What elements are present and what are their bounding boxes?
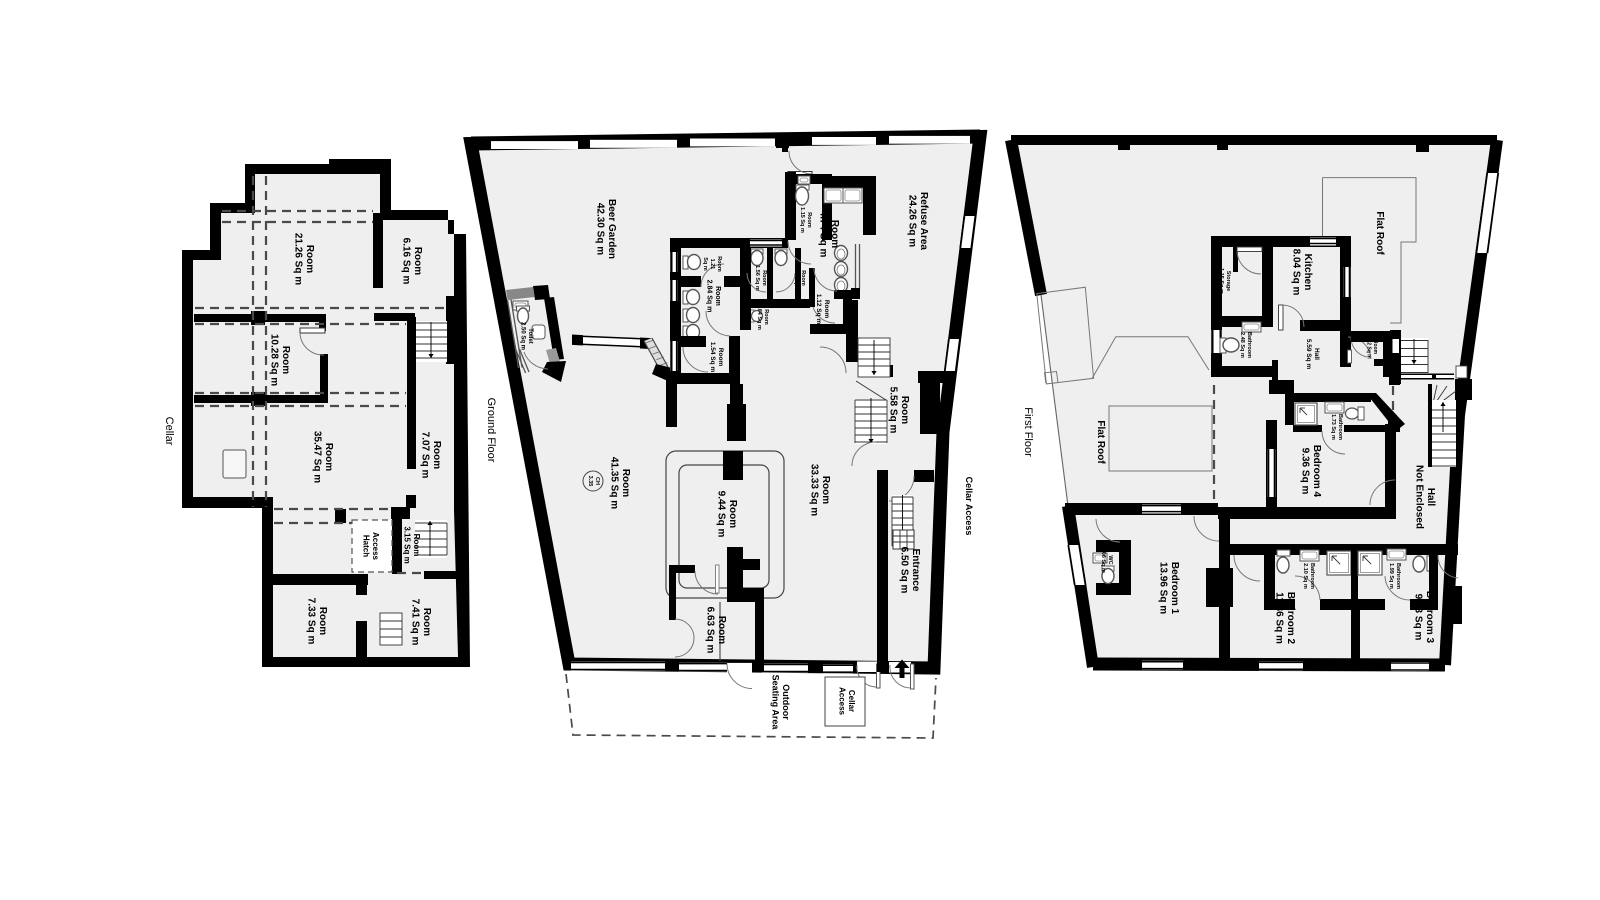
svg-text:Room: Room: [280, 346, 291, 374]
svg-text:Cellar Access: Cellar Access: [964, 477, 974, 536]
svg-text:Refuse Area: Refuse Area: [918, 192, 929, 250]
svg-text:1.99 Sq m: 1.99 Sq m: [1388, 563, 1394, 589]
svg-text:Bedroom 2: Bedroom 2: [1285, 592, 1296, 645]
svg-text:Cellar: Cellar: [163, 417, 175, 446]
svg-text:9.44 Sq m: 9.44 Sq m: [716, 491, 727, 538]
svg-text:Outdoor: Outdoor: [781, 684, 791, 720]
svg-text:Room: Room: [763, 309, 769, 325]
svg-text:2.48 Sq m: 2.48 Sq m: [1239, 332, 1245, 358]
svg-text:Hall: Hall: [1425, 488, 1436, 507]
svg-text:Access: Access: [371, 532, 380, 561]
svg-text:Kitchen: Kitchen: [1302, 254, 1313, 291]
svg-text:Storage: Storage: [1225, 271, 1231, 291]
svg-text:Room: Room: [431, 441, 442, 469]
svg-text:21.26 Sq m: 21.26 Sq m: [293, 233, 304, 285]
svg-text:Room: Room: [620, 469, 631, 497]
svg-text:CH: CH: [594, 477, 600, 485]
svg-text:9.03 Sq m: 9.03 Sq m: [1413, 594, 1424, 641]
svg-text:Beer Garden: Beer Garden: [606, 199, 617, 259]
svg-text:Room: Room: [820, 476, 831, 504]
svg-text:Cellar: Cellar: [847, 690, 856, 712]
svg-text:10.28 Sq m: 10.28 Sq m: [269, 334, 280, 386]
svg-text:1.73 Sq m: 1.73 Sq m: [1330, 414, 1336, 440]
svg-text:2.10 Sq m: 2.10 Sq m: [1302, 563, 1308, 589]
svg-text:Room: Room: [806, 212, 812, 228]
svg-text:Room: Room: [716, 256, 722, 272]
svg-text:WC: WC: [1107, 555, 1113, 564]
svg-text:Ground Floor: Ground Floor: [485, 398, 497, 463]
svg-text:2.84 Sq m: 2.84 Sq m: [706, 280, 713, 313]
svg-text:Room: Room: [727, 500, 738, 528]
svg-text:Room: Room: [823, 300, 830, 319]
svg-text:1.21: 1.21: [709, 259, 715, 270]
svg-text:1.22 Sq m: 1.22 Sq m: [1366, 335, 1372, 359]
svg-text:Room: Room: [714, 286, 721, 306]
svg-text:Bathroom: Bathroom: [1309, 563, 1315, 589]
svg-text:1.15 Sq m: 1.15 Sq m: [1218, 268, 1224, 294]
svg-text:Room: Room: [829, 220, 840, 248]
svg-text:Bathroom: Bathroom: [1246, 332, 1252, 358]
svg-text:42.30 Sq m: 42.30 Sq m: [595, 203, 606, 255]
svg-text:6.63 Sq m: 6.63 Sq m: [705, 607, 716, 654]
svg-text:33.33 Sq m: 33.33 Sq m: [809, 464, 820, 516]
svg-text:Bedroom 1: Bedroom 1: [1169, 562, 1180, 615]
svg-text:Entrance: Entrance: [910, 549, 921, 592]
svg-text:1.12 Sq m: 1.12 Sq m: [815, 294, 822, 325]
svg-text:Bedroom 3: Bedroom 3: [1424, 591, 1435, 644]
svg-text:4.74 Sq m: 4.74 Sq m: [818, 211, 829, 258]
svg-text:Room: Room: [304, 245, 315, 273]
svg-text:5.58 Sq m: 5.58 Sq m: [888, 387, 899, 434]
svg-text:Room: Room: [899, 396, 910, 424]
svg-text:Hall: Hall: [1313, 348, 1320, 360]
svg-text:5.59 Sq m: 5.59 Sq m: [1305, 339, 1312, 370]
svg-text:7.41 Sq m: 7.41 Sq m: [410, 599, 421, 646]
svg-text:Not Enclosed: Not Enclosed: [1414, 465, 1425, 529]
svg-text:Room: Room: [1372, 340, 1378, 355]
svg-text:7.33 Sq m: 7.33 Sq m: [306, 598, 317, 645]
svg-text:Room: Room: [716, 616, 727, 644]
svg-text:1.54 Sq m: 1.54 Sq m: [709, 342, 716, 373]
svg-text:Room: Room: [323, 443, 334, 471]
svg-text:Room: Room: [800, 270, 806, 286]
svg-text:Bedroom 4: Bedroom 4: [1311, 445, 1322, 498]
svg-text:35.47 Sq m: 35.47 Sq m: [312, 431, 323, 483]
svg-text:7.07 Sq m: 7.07 Sq m: [420, 432, 431, 479]
svg-text:2.50 Sq m: 2.50 Sq m: [520, 322, 526, 350]
svg-text:Room: Room: [421, 608, 432, 636]
svg-text:13.96 Sq m: 13.96 Sq m: [1158, 562, 1169, 614]
svg-text:Hatch: Hatch: [362, 535, 371, 557]
svg-text:Bathroom: Bathroom: [1395, 563, 1401, 589]
svg-text:Toilet: Toilet: [527, 328, 533, 344]
svg-text:Flat Roof: Flat Roof: [1374, 211, 1385, 255]
svg-text:41.35 Sq m: 41.35 Sq m: [609, 457, 620, 509]
svg-text:1.56 Sq m: 1.56 Sq m: [754, 265, 760, 291]
svg-text:2.06 Sq m: 2.06 Sq m: [1100, 547, 1106, 573]
svg-text:Seating Area: Seating Area: [771, 675, 781, 731]
svg-text:First Floor: First Floor: [1022, 407, 1034, 457]
svg-text:Sq m: Sq m: [702, 257, 708, 271]
svg-text:8.04 Sq m: 8.04 Sq m: [1291, 249, 1302, 296]
svg-text:3.15 Sq m: 3.15 Sq m: [403, 526, 412, 563]
svg-text:6.16 Sq m: 6.16 Sq m: [401, 238, 412, 285]
svg-text:3.35: 3.35: [587, 476, 593, 487]
svg-text:Bathroom: Bathroom: [1337, 414, 1343, 440]
svg-text:Room: Room: [412, 534, 421, 557]
svg-text:1.64 Sq m: 1.64 Sq m: [756, 304, 762, 330]
svg-text:Access: Access: [838, 687, 847, 716]
svg-text:6.50 Sq m: 6.50 Sq m: [899, 547, 910, 594]
svg-text:Room: Room: [717, 348, 724, 367]
svg-text:1.63 Sq m: 1.63 Sq m: [793, 265, 799, 291]
svg-text:9.36 Sq m: 9.36 Sq m: [1300, 448, 1311, 495]
svg-text:1.15 Sq m: 1.15 Sq m: [799, 207, 805, 233]
svg-text:Flat Roof: Flat Roof: [1095, 420, 1106, 464]
svg-text:Room: Room: [761, 270, 767, 286]
svg-text:Room: Room: [412, 247, 423, 275]
svg-text:11.36 Sq m: 11.36 Sq m: [1274, 592, 1285, 644]
svg-text:Room: Room: [317, 607, 328, 635]
svg-text:24.26 Sq m: 24.26 Sq m: [907, 195, 918, 247]
